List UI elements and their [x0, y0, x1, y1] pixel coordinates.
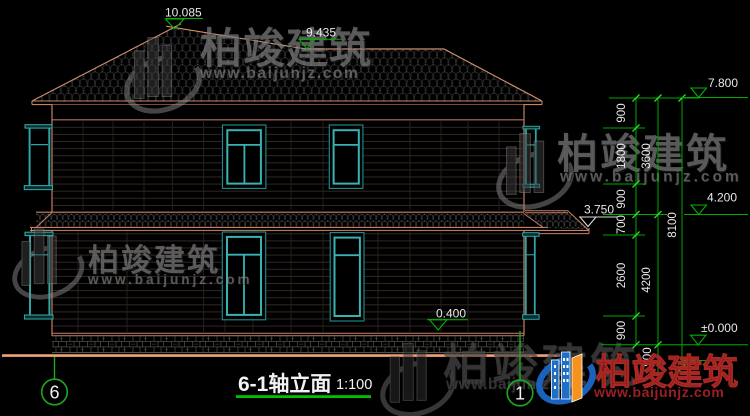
- svg-text:700: 700: [616, 215, 628, 234]
- svg-text:0.400: 0.400: [436, 307, 466, 321]
- svg-text:2600: 2600: [616, 263, 628, 289]
- svg-text:1: 1: [515, 384, 525, 404]
- svg-text:www.baijunjz.com: www.baijunjz.com: [199, 65, 359, 82]
- svg-text:900: 900: [616, 321, 628, 340]
- svg-text:7.800: 7.800: [708, 76, 738, 90]
- svg-text:4200: 4200: [641, 267, 653, 293]
- svg-text:www.baijunjz.com: www.baijunjz.com: [559, 169, 742, 186]
- svg-text:www.baijunjz.com: www.baijunjz.com: [593, 384, 724, 400]
- svg-text:900: 900: [616, 103, 628, 122]
- svg-text:www.baijunjz.com: www.baijunjz.com: [87, 272, 253, 287]
- svg-text:3.750: 3.750: [584, 203, 614, 217]
- svg-text:10.085: 10.085: [165, 6, 202, 20]
- svg-text:9.435: 9.435: [306, 26, 336, 40]
- svg-text:6: 6: [49, 383, 59, 403]
- svg-text:±0.000: ±0.000: [701, 321, 738, 335]
- svg-text:900: 900: [616, 189, 628, 208]
- svg-text:1800: 1800: [616, 143, 628, 169]
- svg-text:6-1轴立面: 6-1轴立面: [238, 372, 331, 396]
- svg-text:8100: 8100: [667, 212, 679, 238]
- svg-text:3600: 3600: [641, 143, 653, 169]
- svg-text:4.200: 4.200: [707, 191, 737, 205]
- svg-text:1:100: 1:100: [336, 377, 372, 393]
